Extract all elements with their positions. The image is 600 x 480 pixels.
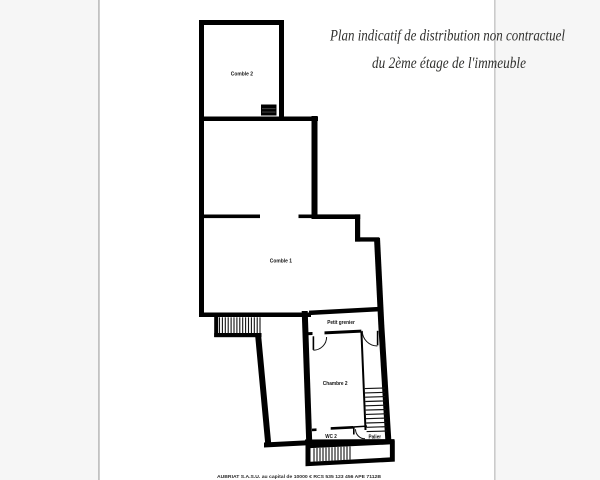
svg-text:du 2ème étage de l'immeuble: du 2ème étage de l'immeuble [372,55,526,72]
svg-text:Comble 1: Comble 1 [270,259,292,265]
svg-text:Chambre 2: Chambre 2 [323,381,348,387]
svg-text:Palier: Palier [369,434,382,440]
svg-text:WC 2: WC 2 [325,434,337,440]
svg-text:Plan indicatif de distribution: Plan indicatif de distribution non contr… [329,28,565,45]
svg-text:AUBRIAT S.A.S.U. au capital d: AUBRIAT S.A.S.U. au capital de 10000 € R… [217,474,381,479]
svg-text:Comble 2: Comble 2 [231,72,253,78]
svg-text:Petit grenier: Petit grenier [327,320,355,326]
